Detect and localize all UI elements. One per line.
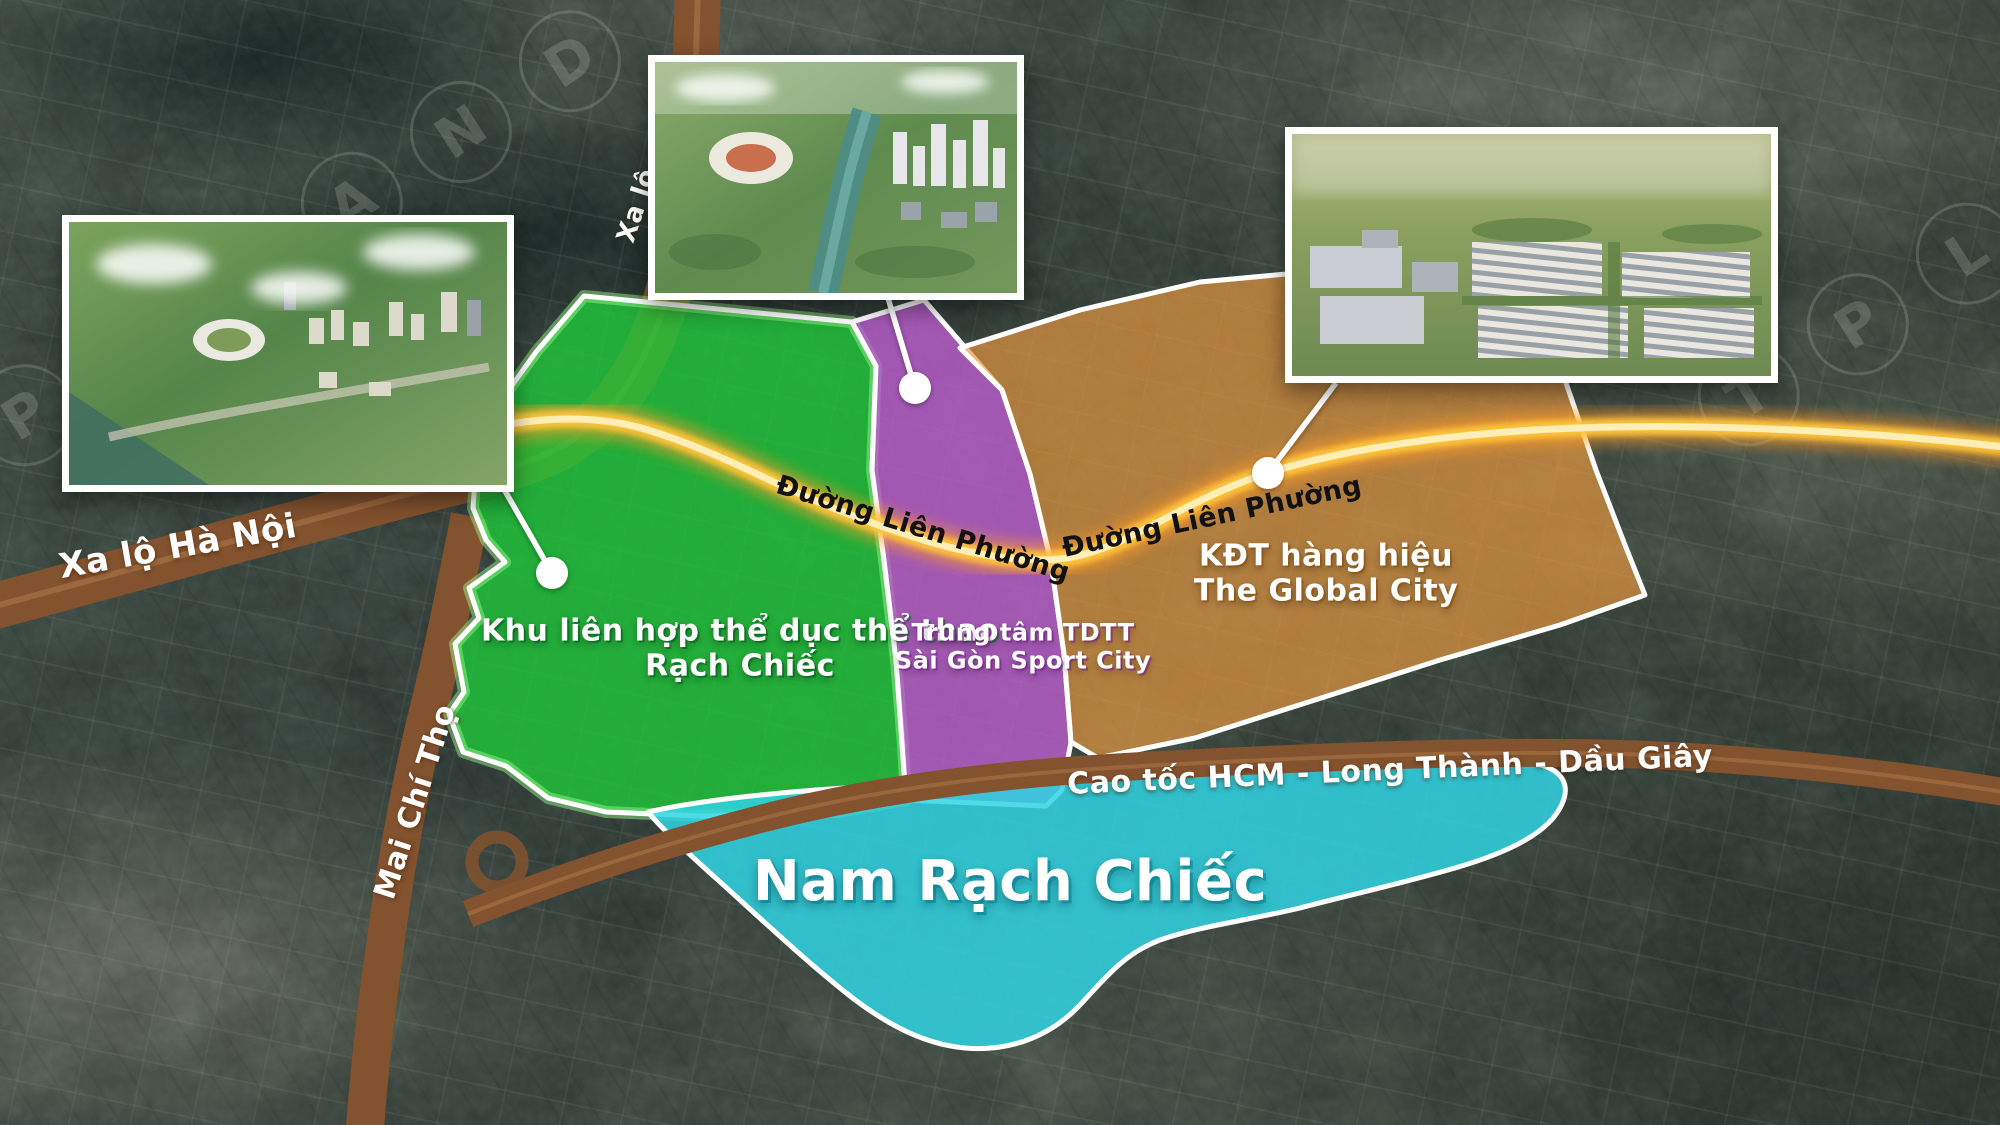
zone-label-the-global-city: KĐT hàng hiệu The Global City (1194, 540, 1458, 609)
inset-right-scene (1292, 134, 1771, 376)
inset-photo-rach-chiec-render (62, 215, 514, 492)
inset-photo-sport-city-render (648, 55, 1024, 300)
zone-label-line1: KĐT hàng hiệu (1194, 540, 1458, 575)
zone-label-nam-rach-chiec: Nam Rạch Chiếc (753, 850, 1267, 914)
zone-label-saigon-sport-city: Trung tâm TDTT Sài Gòn Sport City (895, 619, 1151, 674)
zone-label-line2: Sài Gòn Sport City (895, 647, 1151, 675)
interchange-loop (472, 837, 522, 887)
marker-dot-orange-zone (1252, 457, 1284, 489)
inset-left-scene (69, 222, 507, 485)
marker-dot-green-zone (536, 557, 568, 589)
aerial-master-plan-map: P I L A N D T P L A (0, 0, 2000, 1125)
marker-dot-purple-zone (899, 372, 931, 404)
inset-center-scene (655, 62, 1017, 293)
zone-label-line1: Trung tâm TDTT (895, 619, 1151, 647)
inset-photo-global-city-render (1285, 127, 1778, 383)
zone-label-line2: The Global City (1194, 574, 1458, 609)
